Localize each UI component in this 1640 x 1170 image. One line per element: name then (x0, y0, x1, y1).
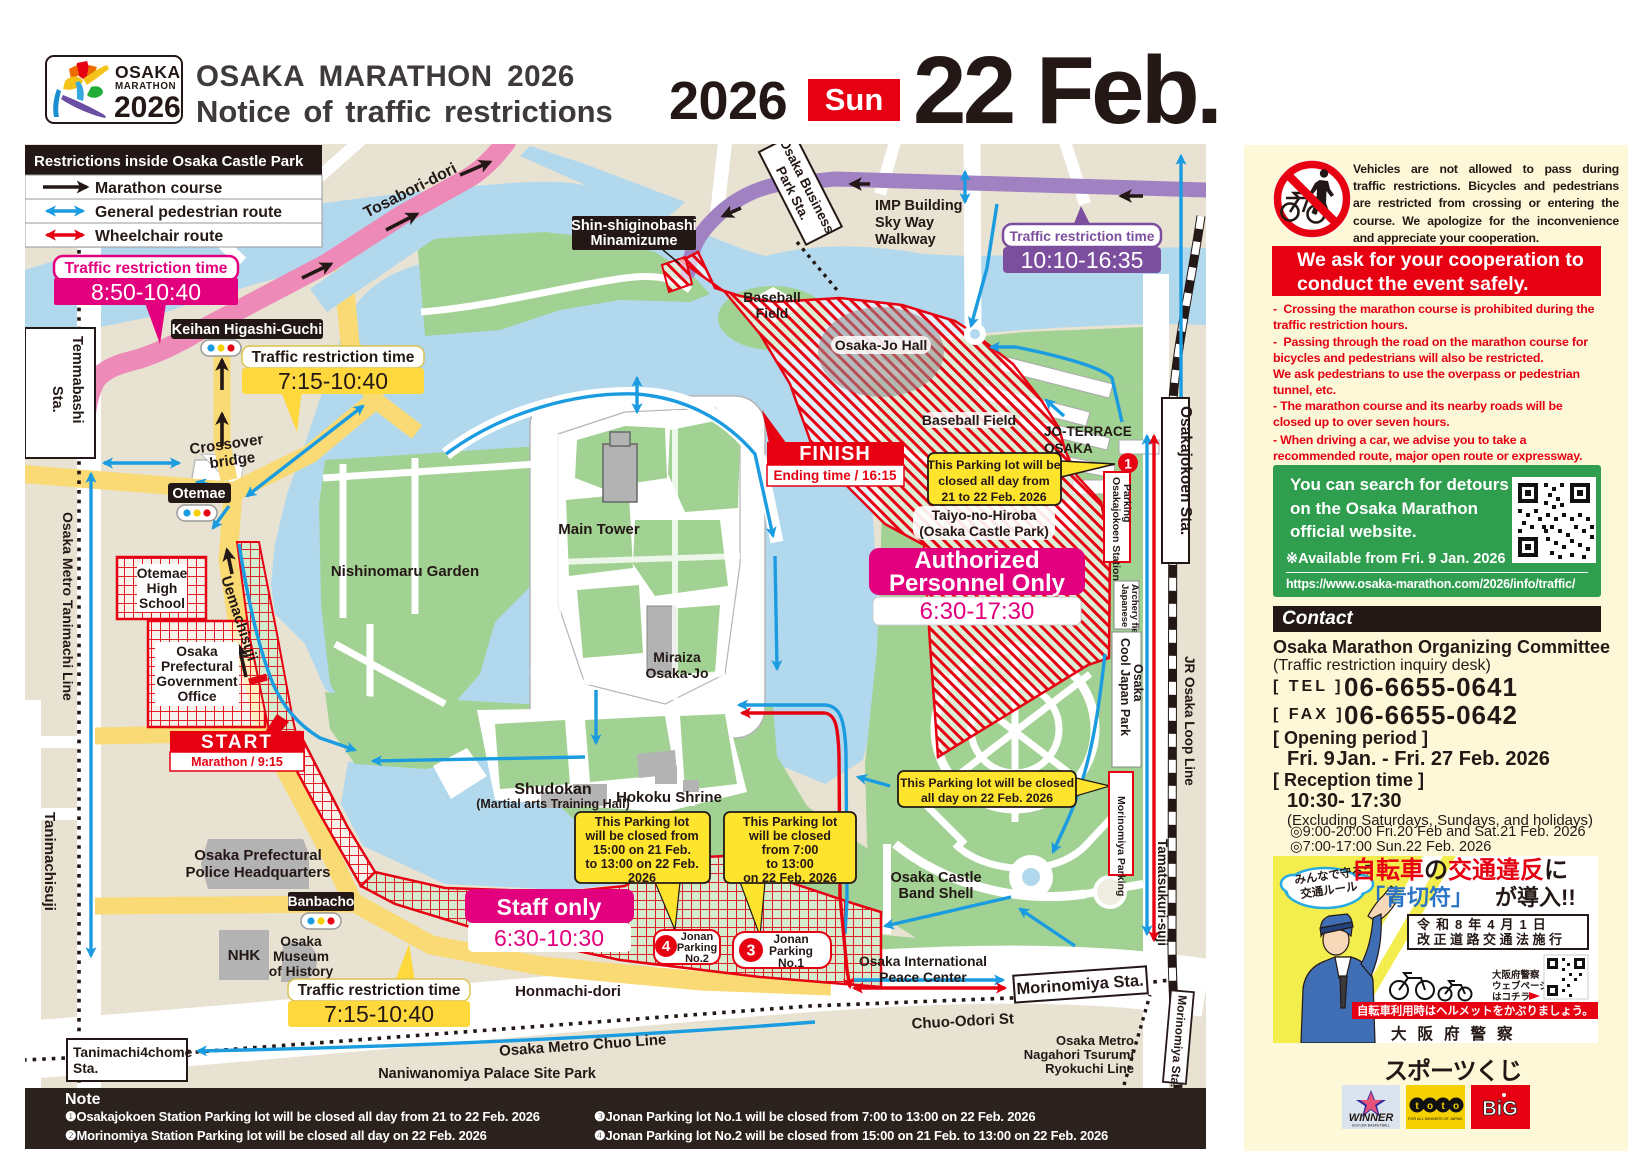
svg-text:Otemae: Otemae (137, 566, 188, 581)
svg-text:が導入!!: が導入!! (1495, 885, 1576, 910)
svg-text:FOR ALL WINNERS OF JAPAN: FOR ALL WINNERS OF JAPAN (1408, 1117, 1462, 1121)
svg-text:Osaka Prefectural: Osaka Prefectural (194, 847, 322, 864)
svg-text:Prefectural: Prefectural (161, 659, 233, 674)
svg-text:自転車の交通違反に: 自転車の交通違反に (1352, 856, 1568, 884)
svg-text:改正道路交通法施行: 改正道路交通法施行 (1417, 932, 1566, 947)
svg-text:Taiyo-no-Hiroba: Taiyo-no-Hiroba (932, 508, 1037, 523)
svg-text:Osakajokoen Station: Osakajokoen Station (1110, 477, 1122, 581)
svg-text:Honmachi-dori: Honmachi-dori (515, 983, 621, 1000)
svg-text:on 22 Feb. 2026: on 22 Feb. 2026 (743, 871, 837, 885)
svg-text:Government: Government (156, 674, 238, 689)
svg-text:High: High (147, 581, 178, 596)
svg-text:Otemae: Otemae (172, 486, 225, 502)
svg-text:2026: 2026 (628, 871, 656, 885)
svg-text:Osaka: Osaka (176, 644, 218, 659)
svg-text:4: 4 (662, 938, 671, 955)
svg-text:8:50-10:40: 8:50-10:40 (91, 279, 201, 305)
svg-text:o: o (1427, 1101, 1433, 1112)
svg-text:No.1: No.1 (778, 956, 804, 970)
svg-text:of History: of History (269, 964, 334, 979)
svg-text:Field: Field (756, 305, 789, 321)
svg-text:Banbacho: Banbacho (288, 894, 355, 909)
svg-text:This Parking lot will be close: This Parking lot will be closed (900, 776, 1074, 790)
svg-text:7:15-10:40: 7:15-10:40 (278, 368, 388, 394)
svg-text:Osaka Castle: Osaka Castle (890, 870, 981, 886)
svg-text:Wheelchair route: Wheelchair route (95, 228, 223, 245)
svg-text:Sky Way: Sky Way (875, 215, 934, 231)
svg-text:Office: Office (177, 689, 216, 704)
svg-text:Traffic restriction time: Traffic restriction time (65, 260, 228, 277)
svg-text:closed all day from: closed all day from (938, 474, 1049, 488)
svg-text:Cool Japan Park: Cool Japan Park (1118, 638, 1132, 736)
svg-text:Walkway: Walkway (875, 232, 936, 248)
svg-text:(Martial arts Training Hall): (Martial arts Training Hall) (476, 797, 630, 811)
svg-text:はコチラ: はコチラ (1492, 992, 1530, 1003)
svg-text:Ryokuchi Line: Ryokuchi Line (1045, 1061, 1134, 1076)
svg-text:BiG: BiG (1482, 1098, 1518, 1120)
svg-text:21 to 22 Feb. 2026: 21 to 22 Feb. 2026 (941, 490, 1046, 504)
svg-text:Marathon / 9:15: Marathon / 9:15 (191, 755, 283, 769)
svg-text:Minamizume: Minamizume (590, 233, 677, 249)
svg-text:WINNER: WINNER (1349, 1112, 1394, 1124)
svg-text:General pedestrian route: General pedestrian route (95, 204, 282, 221)
svg-text:Baseball Field: Baseball Field (922, 412, 1016, 428)
svg-text:Morinomiya Parking: Morinomiya Parking (1115, 796, 1127, 896)
svg-text:Temmabashi: Temmabashi (69, 336, 85, 424)
svg-text:2026: 2026 (114, 91, 180, 121)
svg-text:Osaka: Osaka (280, 934, 322, 949)
svg-text:Baseball: Baseball (743, 289, 801, 305)
svg-text:ウェブページ: ウェブページ (1492, 980, 1549, 992)
svg-text:No.2: No.2 (685, 953, 709, 965)
svg-text:Peace Center: Peace Center (879, 970, 967, 985)
svg-text:大阪府警察: 大阪府警察 (1492, 969, 1540, 981)
svg-text:Parking: Parking (1121, 484, 1133, 523)
svg-text:This Parking lot will be: This Parking lot will be (927, 458, 1060, 472)
svg-text:Band Shell: Band Shell (899, 886, 974, 902)
svg-text:will be closed: will be closed (748, 829, 831, 843)
svg-text:Osaka: Osaka (1131, 664, 1145, 703)
svg-text:Keihan Higashi-Guchi: Keihan Higashi-Guchi (172, 322, 323, 338)
svg-text:Traffic restriction time: Traffic restriction time (252, 349, 415, 366)
svg-text:大阪府警察: 大阪府警察 (1391, 1024, 1524, 1043)
svg-text:FINISH: FINISH (799, 443, 871, 465)
svg-text:Miraiza: Miraiza (653, 649, 701, 665)
svg-text:Nagahori Tsurumi: Nagahori Tsurumi (1024, 1047, 1134, 1062)
svg-text:Osaka Metro Tanimachi Line: Osaka Metro Tanimachi Line (60, 512, 76, 701)
svg-text:JO-TERRACE: JO-TERRACE (1044, 424, 1132, 439)
svg-text:Osaka-Jo Hall: Osaka-Jo Hall (835, 337, 928, 353)
svg-text:to 13:00: to 13:00 (766, 857, 814, 871)
svg-text:Sta.: Sta. (73, 1061, 98, 1076)
svg-text:Osaka International: Osaka International (859, 954, 987, 969)
svg-text:from 7:00: from 7:00 (762, 843, 819, 857)
svg-text:Marathon course: Marathon course (95, 180, 222, 197)
svg-text:「青切符」: 「青切符」 (1363, 885, 1473, 910)
svg-text:10:10-16:35: 10:10-16:35 (1021, 247, 1144, 273)
svg-text:Tamatsukuri-suji: Tamatsukuri-suji (1155, 839, 1170, 946)
svg-text:o: o (1453, 1101, 1459, 1112)
svg-text:to 13:00 on 22 Feb.: to 13:00 on 22 Feb. (585, 857, 698, 871)
svg-text:Naniwanomiya Palace Site Park: Naniwanomiya Palace Site Park (378, 1066, 597, 1082)
svg-text:Hokoku Shrine: Hokoku Shrine (616, 789, 722, 806)
svg-text:Main Tower: Main Tower (558, 521, 640, 538)
svg-text:Osaka-Jo: Osaka-Jo (645, 665, 708, 681)
svg-text:Nishinomaru Garden: Nishinomaru Garden (331, 563, 479, 580)
svg-text:Tanimachi4chome: Tanimachi4chome (73, 1045, 193, 1060)
svg-text:Personnel Only: Personnel Only (889, 570, 1066, 597)
svg-text:School: School (139, 596, 185, 611)
svg-text:Restrictions inside Osaka Cast: Restrictions inside Osaka Castle Park (34, 153, 304, 170)
svg-text:6:30-10:30: 6:30-10:30 (494, 925, 604, 951)
svg-text:(Osaka Castle Park): (Osaka Castle Park) (919, 524, 1049, 539)
svg-text:Traffic restriction time: Traffic restriction time (298, 982, 461, 999)
svg-text:JR Osaka Loop Line: JR Osaka Loop Line (1182, 656, 1197, 786)
svg-text:all day on 22 Feb. 2026: all day on 22 Feb. 2026 (921, 791, 1053, 805)
svg-text:IMP Building: IMP Building (875, 198, 963, 214)
svg-text:Shudokan: Shudokan (514, 781, 591, 798)
svg-text:3: 3 (747, 943, 756, 960)
svg-text:自転車利用時はヘルメットをかぶりましょう。: 自転車利用時はヘルメットをかぶりましょう。 (1357, 1004, 1594, 1018)
svg-text:Tanimachisuji: Tanimachisuji (41, 812, 58, 911)
svg-text:1: 1 (1124, 456, 1132, 472)
svg-text:Sta.: Sta. (49, 386, 65, 413)
svg-text:Ending time / 16:15: Ending time / 16:15 (773, 468, 897, 483)
svg-text:This Parking lot: This Parking lot (743, 815, 838, 829)
svg-text:NHK: NHK (228, 947, 261, 964)
svg-text:This Parking lot: This Parking lot (595, 815, 690, 829)
svg-text:7:15-10:40: 7:15-10:40 (324, 1001, 434, 1027)
svg-text:Staff only: Staff only (497, 894, 602, 920)
svg-text:Osakajokoen Sta.: Osakajokoen Sta. (1177, 406, 1194, 535)
svg-text:Museum: Museum (273, 949, 329, 964)
svg-text:Japanese: Japanese (1119, 584, 1130, 627)
svg-text:OSAKA: OSAKA (115, 62, 180, 82)
svg-text:SOCCER BASKETBALL: SOCCER BASKETBALL (1352, 1124, 1390, 1128)
svg-text:6:30-17:30: 6:30-17:30 (920, 598, 1035, 625)
svg-text:Osaka Metro: Osaka Metro (1056, 1033, 1134, 1048)
svg-text:Police Headquarters: Police Headquarters (185, 864, 330, 881)
svg-text:Traffic restriction time: Traffic restriction time (1010, 229, 1155, 244)
svg-text:will be closed from: will be closed from (584, 829, 698, 843)
svg-text:15:00 on 21 Feb.: 15:00 on 21 Feb. (593, 843, 691, 857)
svg-text:Shin-shiginobashi: Shin-shiginobashi (571, 218, 697, 234)
svg-text:令和8年4月1日: 令和8年4月1日 (1417, 917, 1552, 932)
svg-text:START: START (201, 732, 273, 753)
